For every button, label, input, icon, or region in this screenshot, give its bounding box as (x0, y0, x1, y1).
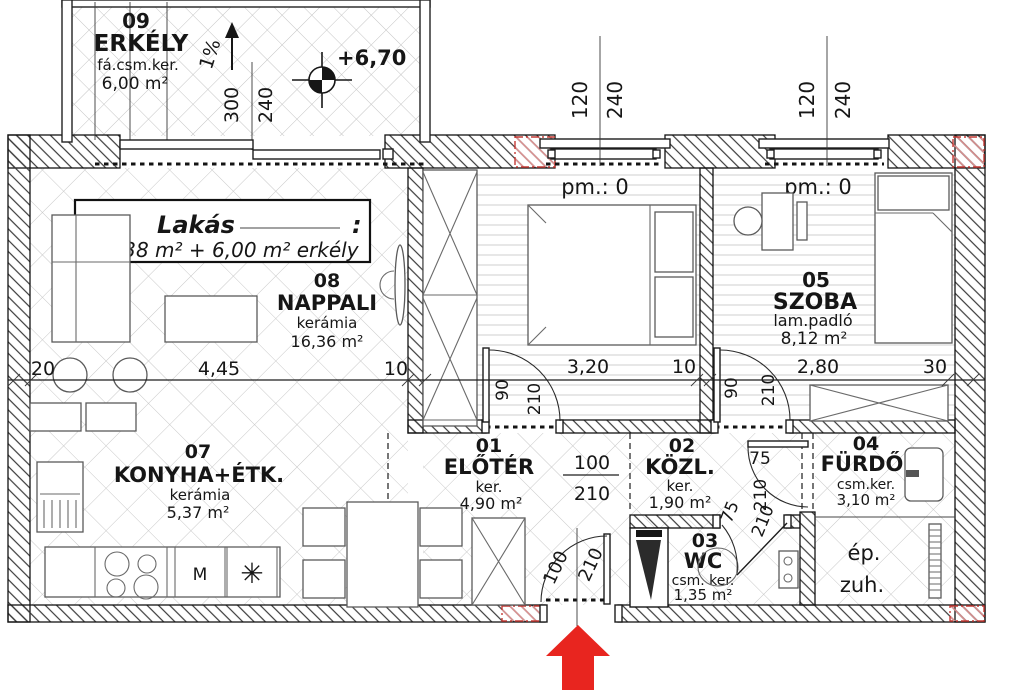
chain-20: 20 (31, 358, 55, 380)
win-left-dim-h: 240 (603, 81, 627, 119)
pm-left: pm.: 0 (561, 175, 629, 199)
dining-chair-1 (303, 508, 345, 546)
erkely-num: 09 (122, 9, 150, 33)
unit-colon: : (352, 211, 362, 239)
floor-plan-drawing: +6,70 1% 300 240 09 ERKÉLY fá.csm.ker. 6… (0, 0, 1024, 690)
wall-wc-top-a (630, 515, 720, 528)
wall-living-room06 (408, 168, 423, 433)
balcony-dim-w: 300 (221, 87, 243, 123)
chain-445: 4,45 (198, 358, 240, 380)
eloter-num: 01 (476, 435, 502, 457)
erkely-name: ERKÉLY (94, 29, 189, 57)
entrance-arrow-head (546, 625, 610, 656)
sideboard-left (30, 403, 81, 431)
pillow-05 (878, 176, 949, 210)
door05-leaf (714, 348, 720, 422)
sofa (52, 215, 130, 342)
wall-south-of-rooms-c (790, 420, 955, 433)
door06-dim-h: 210 (525, 383, 545, 415)
bath-dim-w: 75 (749, 449, 771, 469)
sideboard-right (86, 403, 136, 431)
chain-10b: 10 (672, 356, 696, 378)
konyha-num: 07 (185, 441, 211, 463)
pillow-1 (655, 212, 693, 272)
wall-left (8, 135, 30, 622)
kozl-num: 02 (669, 435, 695, 457)
chain-320: 3,20 (567, 356, 609, 378)
furdo-name: FÜRDŐ (821, 451, 904, 476)
door06-leaf (483, 348, 489, 422)
towel-radiator (929, 524, 941, 598)
opening-dim-h: 210 (574, 483, 610, 505)
door05-dim-h: 210 (759, 374, 779, 406)
hall-furniture (472, 518, 525, 605)
nappali-num: 08 (314, 270, 340, 292)
balcony-parapet-top (62, 0, 430, 7)
konyha-name: KONYHA+ÉTK. (114, 462, 284, 487)
wardrobe-06 (423, 170, 477, 426)
entrance-arrow-icon (546, 656, 610, 690)
konyha-area: 5,37 m² (167, 503, 230, 522)
pouf-1 (53, 358, 87, 392)
win-right-dim-w: 120 (795, 81, 819, 119)
dining-chair-3 (420, 508, 462, 546)
dining-table (347, 502, 418, 607)
wall-south-of-rooms-b (560, 420, 715, 433)
wc-area: 1,35 m² (674, 586, 733, 604)
red-patch-bottom-right (950, 606, 984, 621)
floor-plan-page: +6,70 1% 300 240 09 ERKÉLY fá.csm.ker. 6… (0, 0, 1024, 690)
eloter-name: ELŐTÉR (444, 454, 534, 479)
erkely-finish: fá.csm.ker. (97, 56, 179, 74)
bath-door-leaf (748, 441, 808, 447)
chain-280: 2,80 (797, 356, 839, 378)
desk (797, 202, 807, 240)
balcony-sliding-door (95, 140, 428, 164)
kozl-name: KÖZL. (645, 454, 715, 479)
szoba05-finish: lam.padló (773, 311, 852, 330)
dining-chair-4 (420, 560, 462, 598)
pm-right: pm.: 0 (784, 175, 852, 199)
washer-symbol: M (193, 565, 208, 585)
wall-right (955, 135, 985, 622)
unit-area-line: 50,38 m² + 6,00 m² erkély (91, 238, 359, 262)
balcony-parapet-right (420, 0, 430, 142)
furdo-area: 3,10 m² (837, 491, 896, 509)
coffee-table (165, 296, 257, 342)
pillow-2 (655, 277, 693, 337)
wall-room06-room05 (700, 168, 713, 433)
nappali-area: 16,36 m² (291, 332, 364, 351)
shower-line2: zuh. (840, 573, 884, 597)
entrance-leaf (604, 534, 610, 604)
unit-name: Lakás (157, 211, 235, 239)
shaft (630, 528, 668, 607)
szoba05-num: 05 (802, 268, 830, 292)
balcony-dim-h: 240 (255, 87, 277, 123)
nappali-finish: kerámia (297, 314, 358, 332)
sink-symbol: ✳ (240, 557, 263, 590)
shower-line1: ép. (848, 541, 881, 565)
red-patch-bottom-entry (502, 606, 545, 621)
washbasin-tap (906, 470, 919, 477)
desk-chair (734, 207, 762, 235)
opening-dim-w: 100 (574, 452, 610, 474)
wall-bottom-left (8, 605, 545, 622)
wall-wc-bath (800, 512, 815, 605)
desk-cabinet (762, 193, 793, 250)
level-value: +6,70 (337, 46, 406, 70)
wc-name: WC (684, 549, 723, 573)
dining-chair-2 (303, 560, 345, 598)
pouf-2 (113, 358, 147, 392)
red-patch-top-right (953, 137, 984, 167)
door06-dim-w: 90 (493, 379, 513, 401)
win-left-dim-w: 120 (568, 81, 592, 119)
szoba05-area: 8,12 m² (781, 329, 848, 349)
tv (395, 245, 405, 325)
konyha-finish: kerámia (170, 486, 231, 504)
win-right-dim-h: 240 (831, 81, 855, 119)
chain-10a: 10 (384, 358, 408, 380)
eloter-area: 4,90 m² (460, 494, 523, 513)
wall-bottom-right (618, 605, 985, 622)
erkely-area: 6,00 m² (102, 74, 169, 94)
nappali-name: NAPPALI (277, 291, 377, 315)
balcony-parapet-left (62, 0, 72, 142)
chain-30: 30 (923, 356, 947, 378)
kozl-area: 1,90 m² (649, 493, 712, 512)
